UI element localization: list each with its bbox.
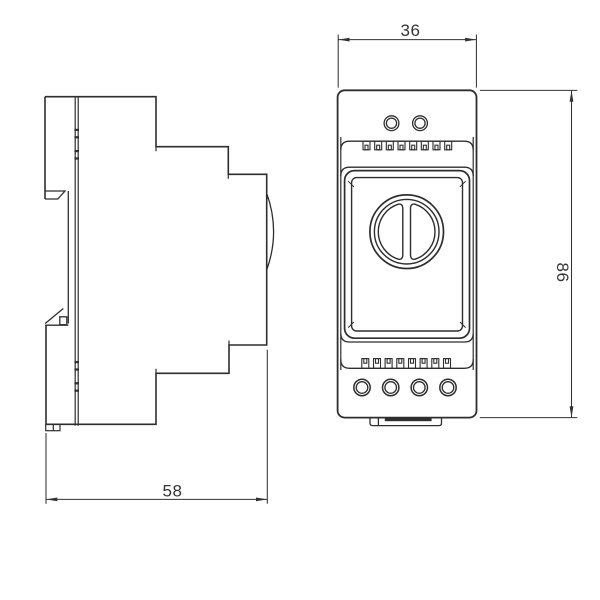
top-screws [384,116,427,131]
collar-line-second [341,167,473,176]
din-clip-spring [45,309,68,326]
clip-tab-handle [385,418,432,421]
vent-slots-bottom [362,359,451,369]
body-wall-lines [341,137,473,370]
dimension-height-label: 86 [553,263,572,283]
arrow-up-icon [570,90,574,101]
corner-overshoots [156,147,229,374]
dimension-width-label: 36 [401,21,421,40]
dimension-width: 36 [338,21,476,87]
dimension-depth-label: 58 [163,481,183,500]
din-clip-hook [45,191,65,199]
terminal-screws [354,379,456,395]
drawing-svg: 36 86 58 [0,0,600,600]
knob-profile-arc [267,193,274,270]
arrow-right-icon [256,498,267,502]
technical-drawing-canvas: 36 86 58 [0,0,600,600]
knob-half-right [411,204,436,259]
din-clip-tab [370,418,442,426]
knob-inner-ring [374,199,439,264]
collar-line-top [341,141,473,150]
arrow-down-icon [570,406,574,417]
front-panel-inner [352,178,463,331]
arrow-left-icon [46,498,57,502]
collar-line-bottom [341,360,473,369]
panel-corner-bevels [348,181,465,327]
knob-half-left [378,204,403,259]
knob-outer-ring [370,195,444,269]
rotary-knob [370,195,444,269]
arrow-left-icon [338,38,349,42]
arrow-right-icon [465,38,476,42]
back-plate [75,97,78,426]
front-view [338,90,477,425]
vent-slots-top [363,141,452,150]
section-lines [341,141,473,368]
dimension-height: 86 [480,90,578,417]
side-view [45,97,274,431]
din-clip-foot [46,424,60,430]
